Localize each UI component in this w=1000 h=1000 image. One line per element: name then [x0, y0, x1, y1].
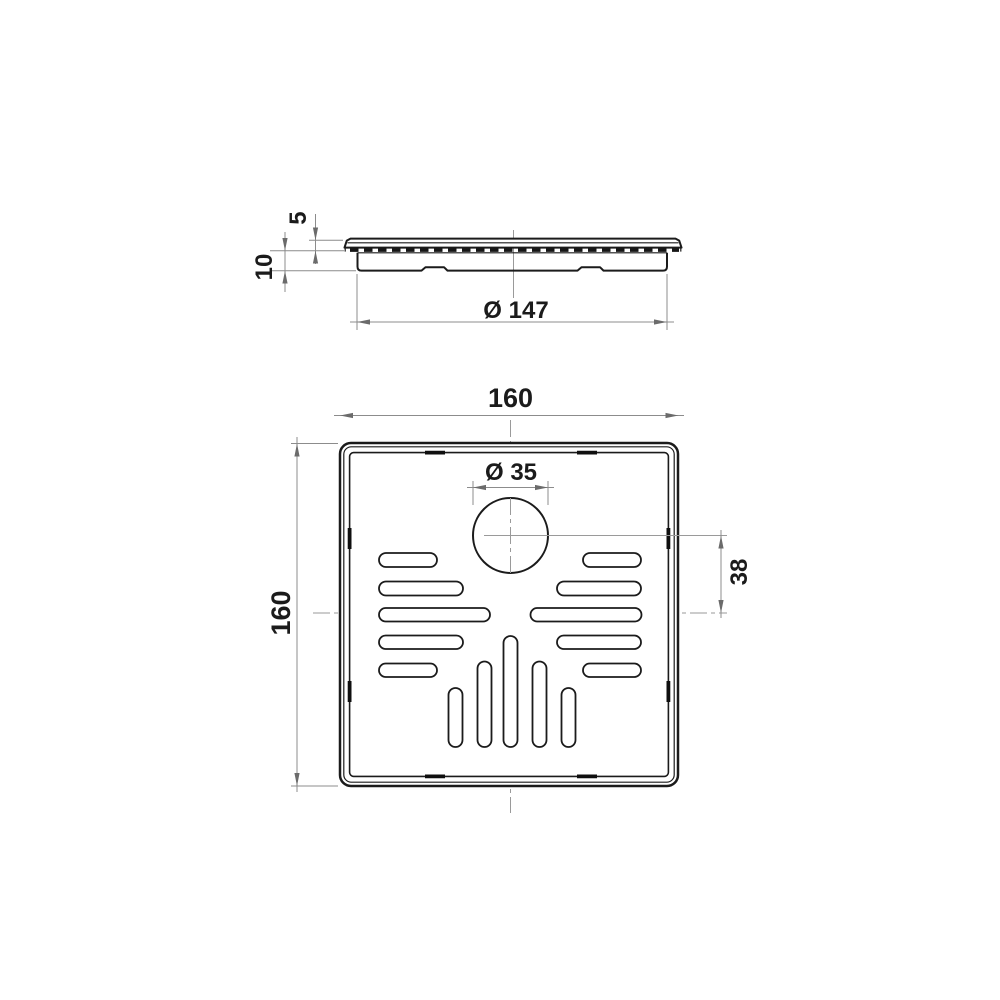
grate-slot	[557, 582, 641, 596]
dim-body-depth: 10	[251, 232, 356, 292]
dim-arrow	[666, 413, 679, 418]
dim-arrow	[313, 228, 318, 241]
dim-label-outlet-diameter: Ø 35	[485, 459, 537, 486]
drain-body-profile	[358, 253, 668, 271]
grate-slot	[379, 664, 437, 678]
dim-plan-width: 160	[334, 383, 684, 418]
grate-slot	[557, 636, 641, 650]
grate-slot	[379, 553, 437, 567]
dim-label-plate-thickness: 5	[285, 211, 312, 224]
dim-arrow	[718, 600, 723, 613]
dim-label-plan-width: 160	[488, 383, 533, 413]
dim-arrow	[313, 251, 318, 264]
dim-body-diameter: Ø 147	[350, 274, 674, 330]
dim-plate-thickness: 5	[270, 211, 344, 264]
grate-slot	[562, 688, 576, 747]
grate-slot	[379, 608, 490, 622]
dim-arrow	[340, 413, 353, 418]
grate-slot	[531, 608, 642, 622]
grate-slot	[533, 662, 547, 748]
plan-view: 160 160 Ø 35 38	[266, 383, 753, 813]
dim-arrow	[357, 319, 370, 324]
dim-arrow	[294, 444, 299, 457]
drawing-canvas: 5 10 Ø 147	[0, 0, 1000, 1000]
dim-label-body-depth: 10	[251, 254, 278, 281]
dim-arrow	[718, 536, 723, 549]
grate-slot	[379, 636, 463, 650]
dim-arrow	[294, 773, 299, 786]
dim-arrow	[654, 319, 667, 324]
dim-arrow	[282, 238, 287, 251]
plan-view-part	[340, 443, 678, 786]
grate-slot	[583, 664, 641, 678]
dim-label-body-diameter: Ø 147	[483, 297, 548, 324]
dim-label-plan-height: 160	[266, 590, 296, 635]
grate-slot	[379, 582, 463, 596]
dim-label-outlet-offset: 38	[726, 559, 753, 586]
grate-slot	[583, 553, 641, 567]
side-view: 5 10 Ø 147	[251, 211, 682, 330]
grate-slot	[449, 688, 463, 747]
technical-drawing: 5 10 Ø 147	[0, 0, 1000, 1000]
dim-plan-height: 160	[266, 437, 338, 792]
grate-slot	[504, 636, 518, 747]
dim-arrow	[282, 271, 287, 284]
grate-slot	[478, 662, 492, 748]
